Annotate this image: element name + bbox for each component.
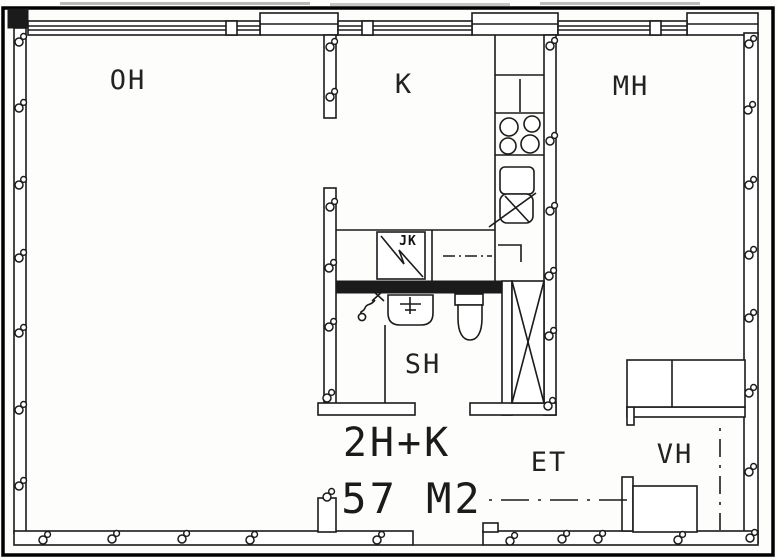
room-label-living-room: OH [110,65,147,96]
window-bedroom [558,21,687,35]
room-label-bathroom: SH [405,349,442,380]
room-label-kitchen: K [395,69,413,100]
room-label-entrance-hall: ET [531,447,568,478]
wall-sh-south [318,403,415,415]
wardrobe-mh [627,360,745,407]
apartment-area: 57 M2 [341,474,482,523]
floor-plan-page: OH K MH SH ET VH JK 2H+K 57 M2 [0,0,777,559]
washbasin [388,295,433,325]
wall-sh-west [324,188,336,404]
room-label-bedroom: MH [613,71,650,102]
window-living-room [28,21,260,35]
scan-noise [60,2,700,6]
duct-shaft [512,281,544,403]
kitchen-sink [489,167,536,227]
kitchen-fixtures [336,35,544,281]
cabinet-vh [633,486,697,532]
room-label-closet: VH [657,439,694,470]
shower-icon [358,290,384,321]
stove-burners [500,116,540,154]
window-kitchen [338,21,472,35]
bathroom-fixtures [358,290,483,403]
wall-et-vh-stub [622,477,633,531]
counter-corner-mark [498,245,521,262]
corner-pier [8,9,28,28]
toilet [455,294,483,340]
apartment-layout-code: 2H+K [343,420,451,466]
wall-stub [318,498,336,532]
wall-mh-vh [627,407,745,425]
wall-sh-east [502,281,512,415]
appliance-label-refrigerator: JK [399,234,417,249]
wall-shaft-south [470,403,556,415]
floor-plan-drawing: OH K MH SH ET VH JK 2H+K 57 M2 [0,0,777,559]
wall-k-mh [544,35,556,415]
